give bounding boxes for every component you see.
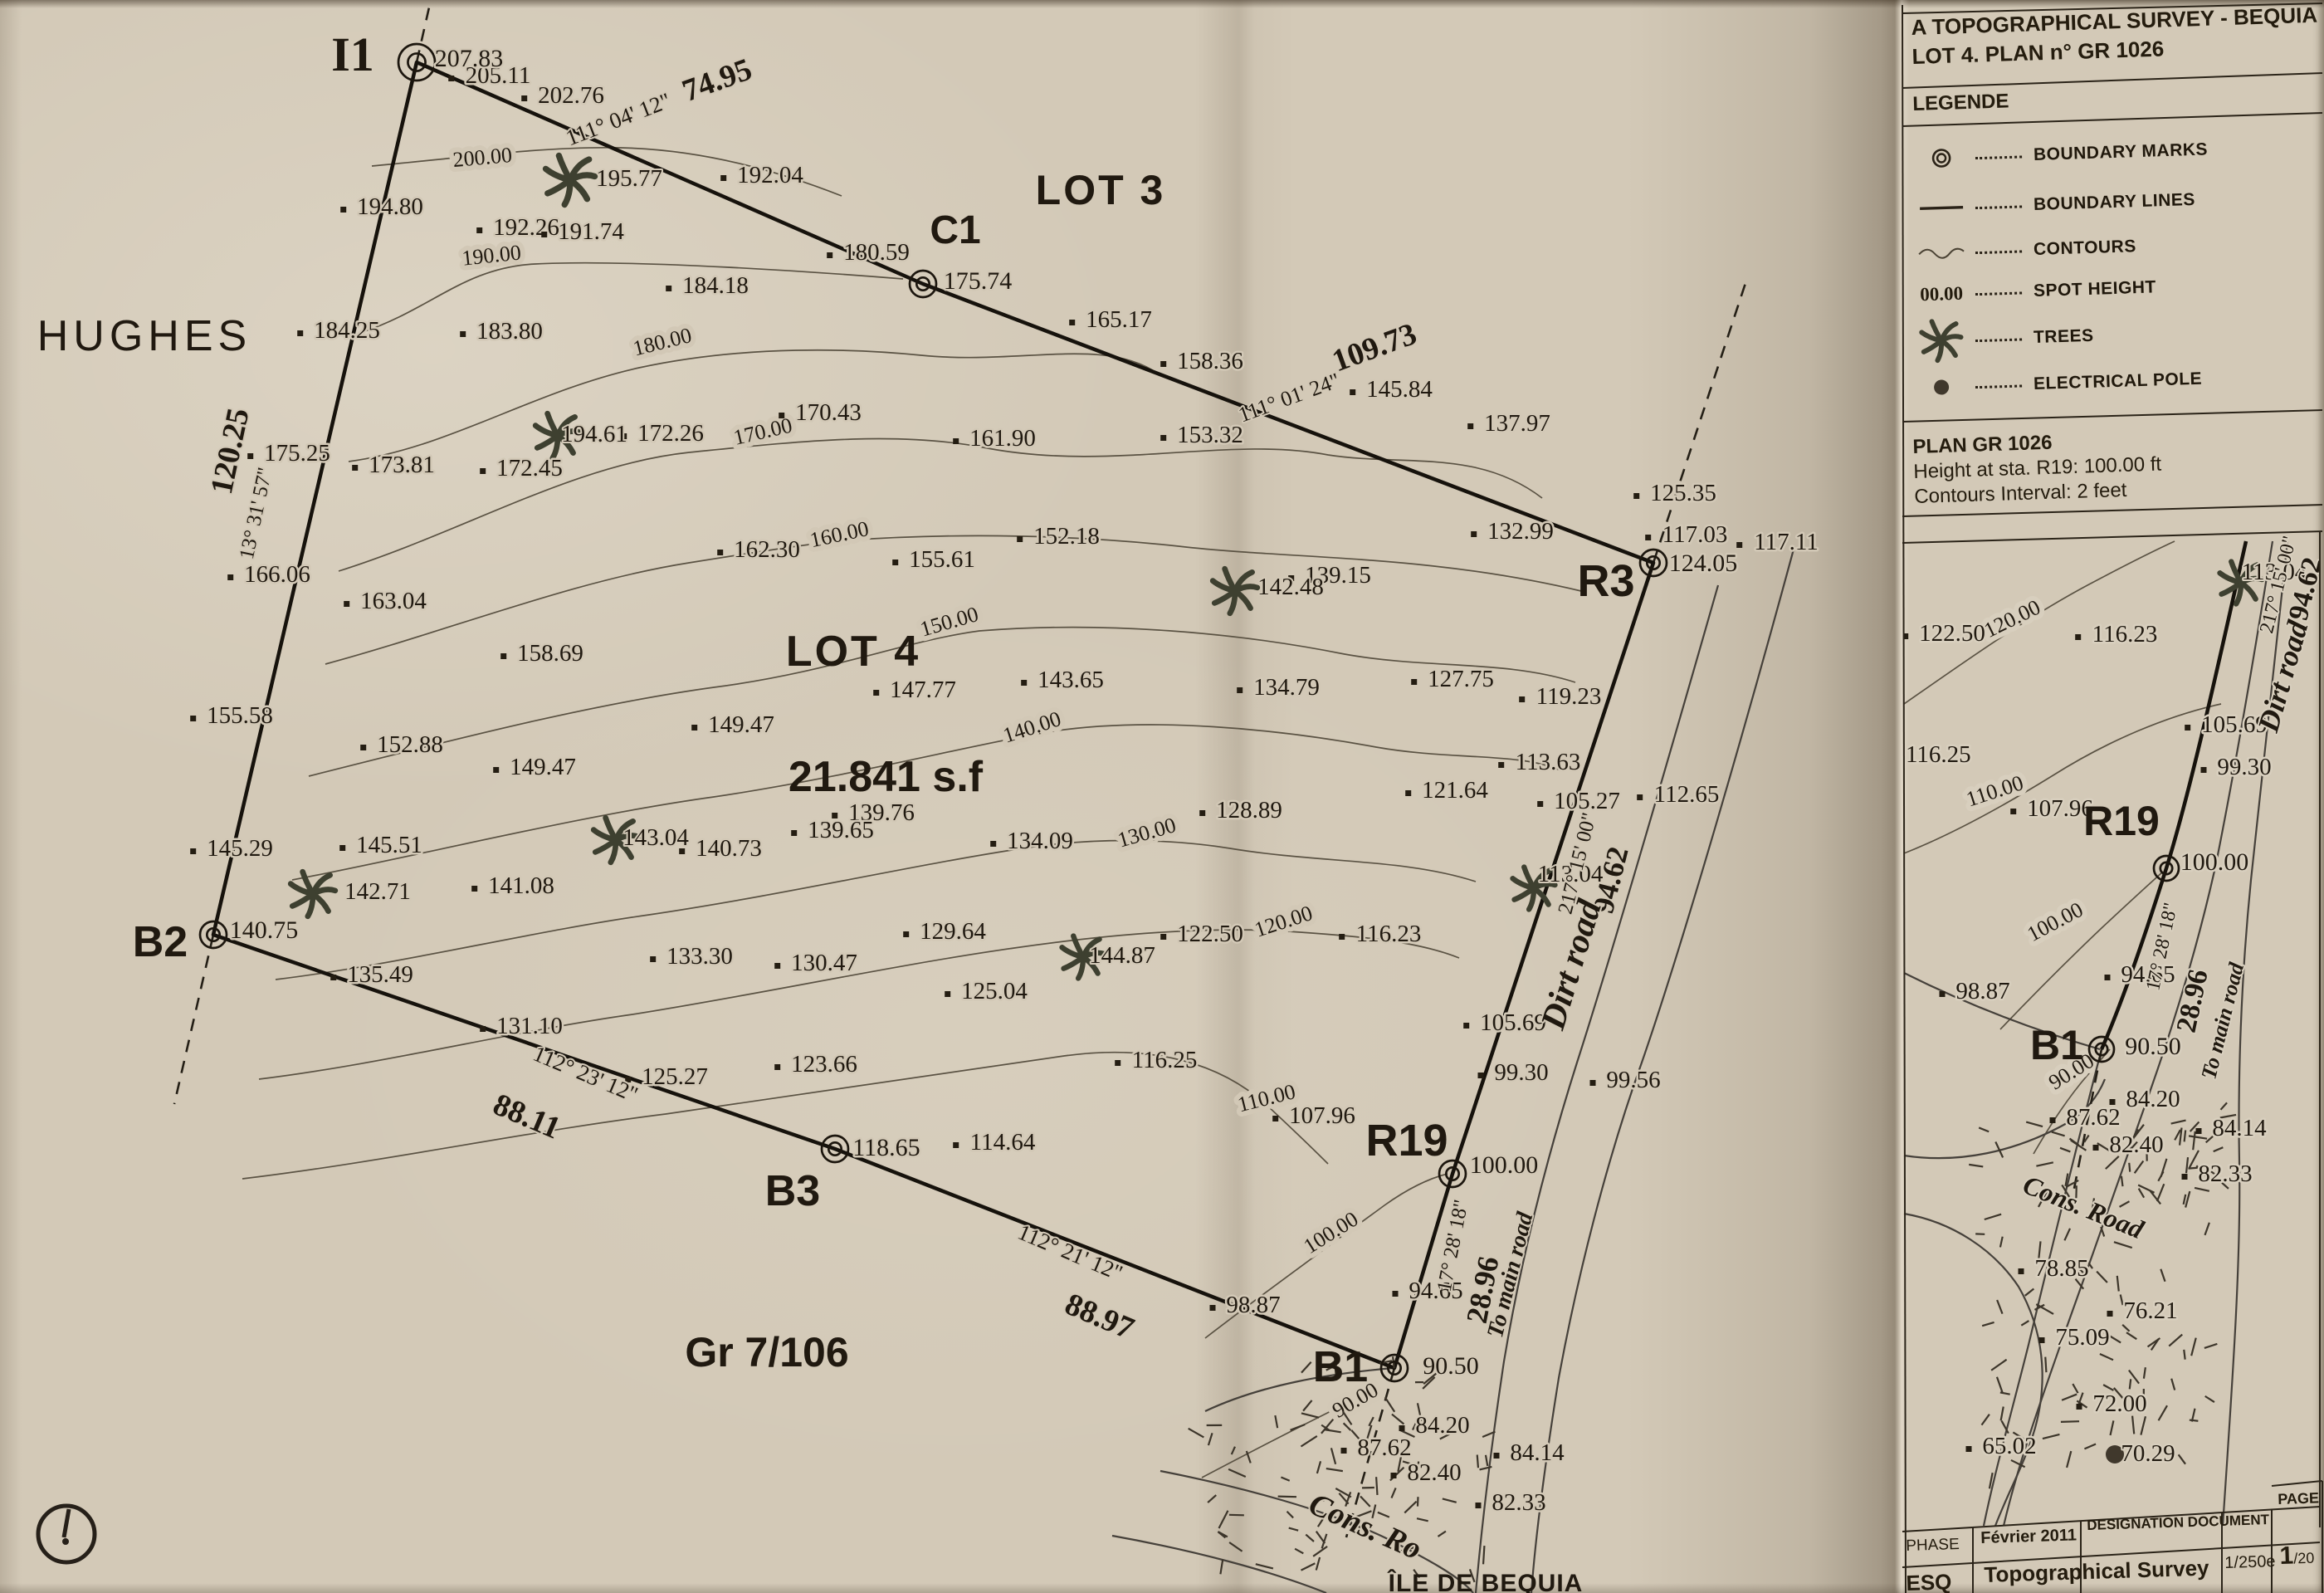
road-hatch-tick xyxy=(2160,1269,2165,1282)
road-hatch-tick xyxy=(2193,1131,2195,1150)
spot-height: 161.90 xyxy=(969,425,1036,452)
spot-height: 78.85 xyxy=(2034,1255,2088,1282)
road-hatch-tick xyxy=(2097,1272,2107,1283)
spot-height-marker xyxy=(1237,687,1243,693)
spot-height-marker xyxy=(1021,680,1027,686)
spot-height-marker xyxy=(339,845,345,851)
road-hatch-tick xyxy=(2191,1338,2196,1356)
map-label: HUGHES xyxy=(37,312,251,360)
legend-label: CONTOURS xyxy=(2033,237,2136,260)
road-hatch-tick xyxy=(2141,1416,2146,1434)
spot-height-marker xyxy=(1645,535,1651,540)
road-hatch-tick xyxy=(2158,1171,2163,1180)
station-height: 90.50 xyxy=(2125,1033,2181,1060)
spot-height: 129.64 xyxy=(920,918,986,945)
spot-height: 158.69 xyxy=(517,640,583,667)
spot-height-marker xyxy=(1966,1446,1972,1452)
road-hatch-tick xyxy=(2132,1416,2134,1434)
spot-height-marker xyxy=(2019,1268,2024,1274)
road-hatch-tick xyxy=(1418,1497,1418,1506)
road-hatch-tick xyxy=(1317,1461,1321,1473)
road-hatch-tick xyxy=(2204,1223,2209,1235)
road-hatch-tick xyxy=(2139,1189,2144,1198)
spot-height: 125.35 xyxy=(1650,480,1716,506)
tree-height: 144.87 xyxy=(1089,942,1155,969)
spot-height: 180.59 xyxy=(843,239,910,266)
contour-line xyxy=(363,263,903,332)
spot-height: 202.76 xyxy=(538,82,604,109)
road-hatch-tick xyxy=(2135,1161,2144,1173)
road-hatch-tick xyxy=(1301,1563,1316,1570)
spot-height: 65.02 xyxy=(1982,1433,2036,1459)
road-hatch-tick xyxy=(2121,1176,2123,1186)
spot-height: 76.21 xyxy=(2123,1297,2177,1324)
road-hatch-tick xyxy=(1360,1497,1370,1507)
spot-height: 128.89 xyxy=(1216,797,1282,823)
tree-height: 142.71 xyxy=(344,878,411,905)
tree-icon xyxy=(1213,569,1257,613)
road-hatch-tick xyxy=(1438,1532,1445,1537)
compass-needle xyxy=(64,1509,69,1537)
road-hatch-tick xyxy=(2190,1420,2199,1421)
station-height: 175.74 xyxy=(944,267,1013,295)
spot-height: 184.25 xyxy=(314,317,380,344)
spot-height: 122.50 xyxy=(1177,921,1243,947)
spot-height-marker xyxy=(2075,634,2081,640)
bearing-label: 112° 23' 12" xyxy=(530,1041,642,1107)
road-hatch-tick xyxy=(1985,1214,2001,1219)
spot-height: 139.65 xyxy=(808,817,874,843)
spot-height-marker xyxy=(1471,531,1477,537)
legend-leader xyxy=(1975,154,2022,159)
spot-height-marker xyxy=(190,848,196,854)
spot-height-marker xyxy=(1160,934,1166,940)
spot-height-marker xyxy=(1160,435,1166,441)
spot-height-marker xyxy=(873,690,879,696)
spot-height: 143.65 xyxy=(1037,667,1104,693)
road-hatch-tick xyxy=(1281,1478,1289,1481)
footer-phase-label: PHASE xyxy=(1906,1536,1960,1556)
legend-leader xyxy=(1975,290,2022,296)
spot-height: 194.80 xyxy=(357,193,423,220)
spot-height-marker xyxy=(990,841,996,847)
road-hatch-tick xyxy=(1997,1377,2003,1394)
road-hatch-tick xyxy=(2111,1420,2114,1435)
road-hatch-tick xyxy=(2036,1304,2053,1314)
tree-height: 195.77 xyxy=(596,165,662,192)
footer-page-number: 1/20 xyxy=(2279,1542,2315,1571)
road-hatch-tick xyxy=(2064,1229,2070,1241)
spot-height: 127.75 xyxy=(1428,666,1494,692)
bearing-label: 88.11 xyxy=(488,1087,565,1146)
road-hatch-tick xyxy=(2221,1102,2228,1109)
road-hatch-tick xyxy=(1443,1498,1457,1502)
road-hatch-tick xyxy=(2214,1147,2224,1151)
road-hatch-tick xyxy=(1278,1497,1296,1498)
contour-label: 170.00 xyxy=(731,413,794,450)
legend-label: SPOT HEIGHT xyxy=(2033,277,2157,301)
spot-height: 82.40 xyxy=(1407,1459,1461,1486)
station-height: 100.00 xyxy=(1470,1151,1539,1179)
spot-height: 147.77 xyxy=(890,677,956,703)
station-height: 118.65 xyxy=(852,1134,920,1161)
spot-height: 82.33 xyxy=(1492,1489,1545,1516)
spot-height-marker xyxy=(344,601,349,607)
spot-height: 107.96 xyxy=(1289,1102,1355,1129)
legend-leader xyxy=(1975,203,2022,209)
road-hatch-tick xyxy=(2103,1385,2113,1390)
contour-label: 140.00 xyxy=(1000,706,1064,748)
spot-height-marker xyxy=(448,76,454,81)
road-hatch-tick xyxy=(2001,1406,2004,1420)
tree-icon xyxy=(1913,315,1970,365)
spot-height-marker xyxy=(945,991,950,997)
spot-height-marker xyxy=(1590,1080,1596,1086)
spot-height-marker xyxy=(953,1142,959,1148)
road-hatch-tick xyxy=(2062,1395,2077,1400)
legend-header: LEGENDE xyxy=(1912,90,2009,116)
spot-height-marker xyxy=(1498,762,1504,768)
panel-frame-line xyxy=(1902,113,2322,126)
spot-height: 84.14 xyxy=(2212,1115,2267,1141)
spot-height: 135.49 xyxy=(347,961,413,988)
spot-height: 170.43 xyxy=(795,399,862,426)
road-hatch-tick xyxy=(2122,1325,2129,1332)
spot-height-marker xyxy=(521,95,527,101)
road-hatch-tick xyxy=(1208,1433,1213,1445)
spot-height: 117.11 xyxy=(1754,529,1819,555)
road-hatch-tick xyxy=(2067,1451,2071,1468)
tree-height: 143.04 xyxy=(622,824,689,851)
spot-height-marker xyxy=(360,745,366,750)
spot-height: 153.32 xyxy=(1177,422,1243,448)
footer-phase-value: ESQ xyxy=(1906,1569,1952,1593)
road-hatch-tick xyxy=(2184,1195,2186,1205)
spot-height: 87.62 xyxy=(1357,1434,1411,1461)
road-hatch-tick xyxy=(2061,1421,2079,1422)
spot-height-marker xyxy=(666,286,671,291)
station-height: 124.05 xyxy=(1669,550,1738,577)
spot-height: 141.08 xyxy=(488,872,554,899)
road-hatch-tick xyxy=(1369,1417,1373,1426)
road-hatch-tick xyxy=(2043,1434,2059,1439)
spot-height: 145.51 xyxy=(356,832,422,858)
road-hatch-tick xyxy=(2185,1191,2190,1207)
bearing-label: 17° 28' 18" xyxy=(2142,901,2182,993)
boundary-extension-dashed xyxy=(1653,278,1747,563)
road-hatch-tick xyxy=(2114,1242,2132,1248)
road-hatch-tick xyxy=(2036,1162,2053,1165)
spot-height-marker xyxy=(1637,794,1643,800)
spot-height-marker xyxy=(460,331,466,337)
spot-height: 132.99 xyxy=(1487,518,1554,545)
spot-height: 166.06 xyxy=(244,561,310,588)
legend-leader xyxy=(1975,383,2022,388)
road-hatch-tick xyxy=(1208,1495,1216,1503)
legend-leader xyxy=(1975,336,2022,342)
spot-height-marker xyxy=(717,550,723,555)
panel-frame-line xyxy=(2272,1481,2322,1486)
spot-height: 82.33 xyxy=(2198,1161,2252,1187)
road-hatch-tick xyxy=(1483,1546,1484,1564)
road-hatch-tick xyxy=(1220,1560,1223,1575)
spot-height: 137.97 xyxy=(1484,410,1550,437)
road-hatch-tick xyxy=(2121,1295,2123,1306)
compass-icon xyxy=(38,1506,95,1562)
station-label: C1 xyxy=(930,208,980,252)
station-label: I1 xyxy=(331,27,374,81)
spot-height-marker xyxy=(1633,493,1639,499)
spot-height-marker xyxy=(500,653,506,659)
contour-line xyxy=(1904,704,2221,853)
panel-frame-line xyxy=(1902,73,2322,88)
road-hatch-tick xyxy=(2179,1454,2185,1464)
legend-leader xyxy=(1975,248,2022,254)
road-hatch-tick xyxy=(1417,1518,1428,1521)
legend-label: TREES xyxy=(2033,326,2094,348)
boundary-mark-icon xyxy=(1913,139,1969,176)
spot-height-marker xyxy=(1940,991,1946,997)
station-label: B1 xyxy=(1313,1343,1368,1391)
road-hatch-tick xyxy=(1344,1423,1351,1430)
spot-height: 99.56 xyxy=(1606,1067,1660,1093)
road-hatch-tick xyxy=(1232,1447,1235,1454)
road-hatch-tick xyxy=(1229,1542,1242,1551)
spot-height-marker xyxy=(720,175,726,181)
tree-height: 142.48 xyxy=(1257,574,1324,600)
spot-height: 131.10 xyxy=(496,1013,563,1039)
road-hatch-tick xyxy=(1979,1127,1989,1131)
road-hatch-tick xyxy=(2157,1184,2164,1201)
road-hatch-tick xyxy=(1301,1413,1319,1417)
road-hatch-tick xyxy=(1219,1511,1228,1528)
road-hatch-tick xyxy=(1287,1512,1294,1518)
road-name-label: Dirt road xyxy=(2251,616,2315,736)
station-height: 140.75 xyxy=(230,916,299,944)
road-hatch-tick xyxy=(1295,1549,1303,1554)
road-hatch-tick xyxy=(2195,1188,2209,1191)
road-hatch-tick xyxy=(2073,1384,2077,1393)
road-hatch-tick xyxy=(1385,1397,1394,1411)
spot-height-marker xyxy=(476,227,482,233)
spot-height-marker xyxy=(1405,790,1411,796)
map-label: ÎLE DE BEQUIA xyxy=(1387,1569,1584,1593)
spot-height: 105.27 xyxy=(1554,788,1620,814)
spot-height-marker xyxy=(2010,809,2016,814)
spot-height-marker xyxy=(1341,1448,1347,1454)
spot-height: 192.26 xyxy=(493,214,559,241)
spot-height-marker xyxy=(691,725,697,731)
spot-height: 99.30 xyxy=(1494,1059,1548,1086)
spot-height: 125.27 xyxy=(642,1063,708,1090)
spot-height: 152.88 xyxy=(377,731,443,758)
spot-height-marker xyxy=(541,232,547,237)
spot-height: 116.25 xyxy=(1132,1047,1198,1073)
spot-height-sample: 00.00 xyxy=(1914,282,1970,305)
road-hatch-tick xyxy=(1331,1448,1335,1464)
road-hatch-tick xyxy=(1313,1547,1327,1556)
road-hatch-tick xyxy=(2000,1237,2003,1248)
station-height: 100.00 xyxy=(2180,848,2249,876)
map-label: LOT 4 xyxy=(786,628,920,676)
road-hatch-tick xyxy=(1275,1415,1277,1428)
road-hatch-tick xyxy=(1326,1468,1343,1471)
spot-height-marker xyxy=(1210,1305,1216,1311)
spot-height: 149.47 xyxy=(708,711,774,738)
spot-height-marker xyxy=(227,574,233,580)
bearing-label: 111° 01' 24" xyxy=(1235,369,1343,428)
spot-height-marker xyxy=(2039,1337,2045,1343)
road-hatch-tick xyxy=(1301,1436,1316,1447)
road-hatch-tick xyxy=(2126,1332,2136,1339)
road-hatch-tick xyxy=(2052,1132,2065,1136)
spot-height-marker xyxy=(1537,801,1543,807)
spot-height-marker xyxy=(827,252,832,258)
road-hatch-tick xyxy=(2026,1122,2043,1127)
spot-height-marker xyxy=(330,975,336,980)
spot-height-marker xyxy=(1339,934,1345,940)
road-hatch-tick xyxy=(1982,1322,1994,1326)
legend-label: ELECTRICAL POLE xyxy=(2033,369,2203,394)
panel-frame-line xyxy=(1902,5,1906,1593)
bearing-label: 112° 21' 12" xyxy=(1014,1219,1126,1286)
spot-height-marker xyxy=(1411,679,1417,685)
spot-height: 173.81 xyxy=(369,452,435,478)
spot-height-marker xyxy=(774,1064,780,1070)
map-label: LOT 3 xyxy=(1036,167,1166,213)
map-label: Gr 7/106 xyxy=(685,1329,848,1376)
boundary-line-icon xyxy=(1914,202,1969,213)
spot-height-marker xyxy=(493,767,499,773)
spot-height: 152.18 xyxy=(1033,523,1100,550)
spot-height: 163.04 xyxy=(360,588,427,614)
spot-height-marker xyxy=(892,560,898,565)
spot-height-marker xyxy=(1272,1116,1278,1121)
road-hatch-tick xyxy=(1289,1528,1298,1531)
spot-height-marker xyxy=(1519,696,1525,702)
road-hatch-tick xyxy=(1486,1455,1487,1466)
spot-height: 165.17 xyxy=(1086,306,1152,333)
road-hatch-tick xyxy=(1392,1415,1404,1424)
station-height: 90.50 xyxy=(1423,1352,1479,1380)
road-hatch-tick xyxy=(1301,1362,1311,1373)
road-hatch-tick xyxy=(2204,1344,2217,1348)
station-label: B1 xyxy=(2030,1022,2083,1068)
footer-scale: 1/250e xyxy=(2224,1552,2276,1573)
road-hatch-tick xyxy=(2189,1136,2207,1138)
road-hatch-tick xyxy=(2060,1148,2070,1152)
spot-height: 112.65 xyxy=(1654,781,1720,808)
road-hatch-tick xyxy=(1391,1488,1395,1498)
compass-hub xyxy=(62,1538,69,1545)
road-hatch-tick xyxy=(2169,1335,2182,1346)
road-hatch-tick xyxy=(2000,1392,2010,1394)
spot-height-marker xyxy=(779,413,784,418)
spot-height-marker xyxy=(2077,1404,2082,1410)
road-hatch-tick xyxy=(1969,1165,1983,1167)
spot-height-marker xyxy=(2050,1117,2056,1123)
spot-height-marker xyxy=(1399,1425,1405,1431)
road-hatch-tick xyxy=(2159,1405,2167,1420)
road-hatch-tick xyxy=(1256,1564,1273,1568)
road-hatch-tick xyxy=(1189,1429,1204,1438)
spot-height: 145.29 xyxy=(207,835,273,862)
contour-label: 200.00 xyxy=(452,143,513,172)
road-hatch-tick xyxy=(1376,1477,1377,1495)
spot-height: 192.04 xyxy=(737,162,803,188)
road-name-label: Cons. Road xyxy=(2019,1169,2148,1244)
road-hatch-tick xyxy=(2205,1396,2214,1402)
bearing-label: 74.95 xyxy=(678,51,757,109)
plan-info-block: PLAN GR 1026 Height at sta. R19: 100.00 … xyxy=(1912,428,2163,510)
spot-height: 134.79 xyxy=(1253,674,1320,701)
bearing-label: 88.97 xyxy=(1060,1287,1139,1346)
spot-height-marker xyxy=(774,963,780,969)
road-hatch-tick xyxy=(1228,1469,1246,1477)
road-hatch-tick xyxy=(2100,1354,2113,1360)
spot-height-marker xyxy=(1160,361,1166,367)
spot-height: 84.20 xyxy=(1415,1412,1469,1439)
spot-height-marker xyxy=(1736,542,1742,548)
spot-height: 119.23 xyxy=(1536,683,1602,710)
spot-height-marker xyxy=(1494,1453,1500,1459)
spot-height-marker xyxy=(1478,1073,1484,1078)
pole-height: 70.29 xyxy=(2121,1440,2175,1467)
spot-height-marker xyxy=(480,1026,486,1032)
spot-height-marker xyxy=(1467,423,1473,429)
legend-label: BOUNDARY LINES xyxy=(2033,190,2196,215)
bearing-label: 28.96 xyxy=(2171,967,2214,1036)
road-hatch-tick xyxy=(1997,1300,2002,1314)
spot-height-marker xyxy=(2185,725,2190,731)
road-hatch-tick xyxy=(1991,1360,2006,1371)
road-hatch-tick xyxy=(1982,1415,1990,1425)
scanned-survey-plan: 200.00190.00180.00170.00160.00150.00140.… xyxy=(0,0,2324,1593)
spot-height: 114.64 xyxy=(970,1129,1036,1156)
spot-height-marker xyxy=(190,716,196,721)
spot-height-marker xyxy=(2110,1099,2116,1105)
spot-height: 175.25 xyxy=(264,440,330,467)
contour-label: 180.00 xyxy=(631,323,694,360)
station-label: B2 xyxy=(133,918,188,966)
spot-height-marker xyxy=(471,886,477,892)
spot-height-marker xyxy=(953,438,959,444)
road-name-label: Dirt road xyxy=(1534,895,1609,1034)
spot-height-marker xyxy=(2093,1145,2099,1151)
road-hatch-tick xyxy=(2184,1350,2185,1360)
contour-label: 160.00 xyxy=(808,516,871,552)
spot-height: 130.47 xyxy=(791,950,857,976)
station-label: R19 xyxy=(1365,1116,1448,1165)
spot-height: 123.66 xyxy=(791,1051,857,1077)
spot-height: 172.45 xyxy=(496,455,563,481)
spot-height: 162.30 xyxy=(734,536,800,563)
tree-height: 194.61 xyxy=(561,421,627,447)
spot-height: 183.80 xyxy=(476,318,543,344)
spot-height: 84.14 xyxy=(1510,1439,1565,1466)
road-hatch-tick xyxy=(1291,1424,1306,1430)
spot-height-marker xyxy=(2201,767,2207,773)
station-height: 207.83 xyxy=(435,45,504,72)
spot-height: 84.20 xyxy=(2126,1086,2180,1112)
spot-height: 75.09 xyxy=(2055,1324,2109,1351)
spot-height-marker xyxy=(1393,1291,1399,1297)
road-name-label: Cons. Ro xyxy=(1304,1487,1427,1567)
spot-height: 155.61 xyxy=(909,546,975,573)
spot-height-marker xyxy=(247,453,253,459)
spot-height: 99.30 xyxy=(2217,754,2271,780)
contour-label: 110.00 xyxy=(1963,770,2026,811)
